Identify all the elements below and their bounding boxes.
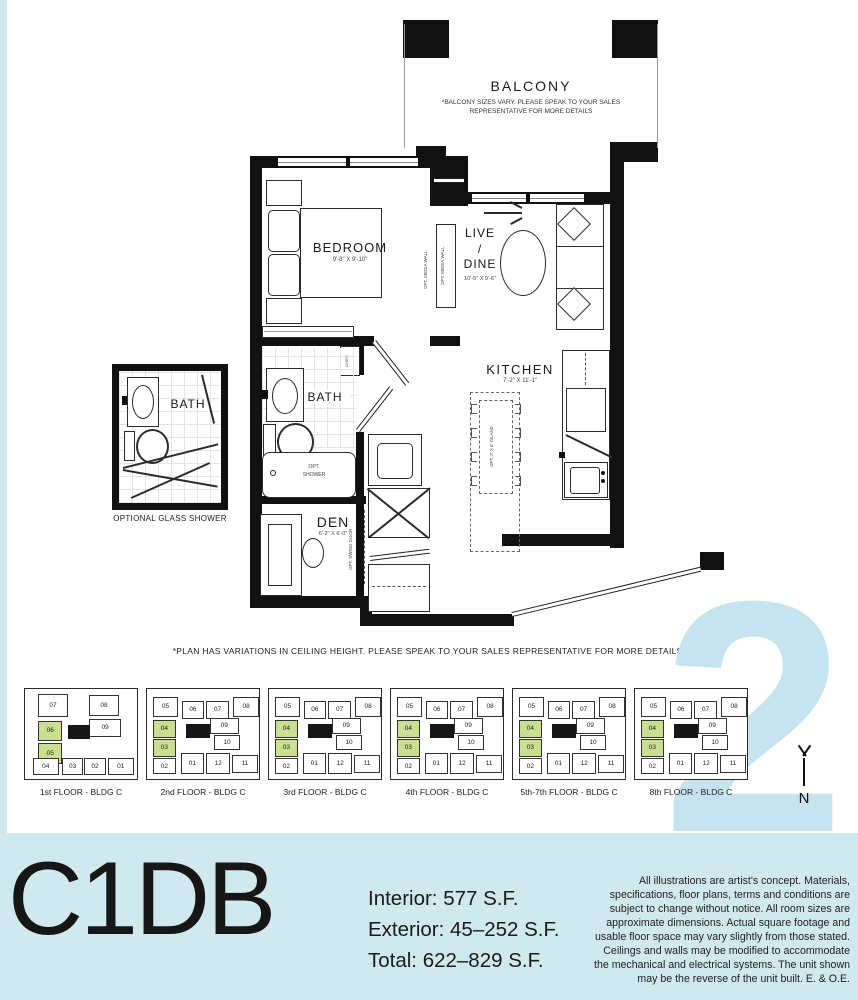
keyplan-unit: 03 [62,758,83,775]
footer-band: C1DB Interior: 577 S.F. Exterior: 45–252… [0,833,858,1000]
keyplan-map: 050607080409031002011211 [634,688,748,780]
island-chair [515,452,521,462]
inset-caption: OPTIONAL GLASS SHOWER [100,514,240,523]
disclaimer: All illustrations are artist's concept. … [590,875,850,987]
keyplan-unit: 10 [580,735,606,750]
island-chair [471,452,477,462]
inset-toilet-tank [124,431,135,461]
bedroom-dims: 9'-8" X 9'-10" [288,257,412,263]
keyplan-unit: 06 [670,701,692,719]
keyplan-unit: 05 [153,697,179,717]
keyplan-unit: 02 [397,758,421,774]
inset-faucet [122,396,127,405]
keyplan: 0708060905040302011st FLOOR - BLDG C [24,688,138,797]
keyplan-unit: 11 [354,755,380,773]
keyplan-unit: 09 [454,718,483,734]
washer [377,443,413,479]
keyplan-unit: 01 [669,753,693,774]
keyplan-unit-highlighted: 04 [275,720,299,738]
keyplan-core [68,725,90,739]
keyplan-unit-highlighted: 03 [641,739,665,757]
balcony-label: BALCONY [403,78,659,94]
floorplan-sheet: BALCONY *BALCONY SIZES VARY. PLEASE SPEA… [0,0,858,1000]
keyplan-unit: 07 [328,701,350,719]
nightstand [266,298,302,324]
keyplan-unit: 08 [233,697,259,717]
wall-bedroom-bottom [430,336,460,346]
swing-door-label: OPT. SWING DOOR [348,518,358,580]
keyplan-unit: 12 [450,753,474,774]
keyplan-unit-highlighted: 03 [275,739,299,757]
keyplan-unit-highlighted: 04 [153,720,177,738]
keyplan-core [552,724,576,738]
keyplan-unit-highlighted: 04 [397,720,421,738]
keyplan-unit: 07 [206,701,228,719]
keyplan-unit: 09 [89,719,121,737]
keyplan-unit-highlighted: 04 [519,720,543,738]
keyplan-unit: 05 [275,697,301,717]
keyplan-unit: 11 [232,755,258,773]
keyplan-map: 050607080409031002011211 [146,688,260,780]
keyplan-unit: 11 [598,755,624,773]
island-chair [515,428,521,438]
keyplan-unit: 02 [84,758,105,775]
media-wall-label: OPT. MEDIA WALL [440,228,452,304]
island-chair [515,404,521,414]
keyplan-core [186,724,210,738]
keyplan-unit: 01 [108,758,134,775]
keyplan: 0506070804090310020112114th FLOOR - BLDG… [390,688,504,797]
keyplan-map: 050607080409031002011211 [268,688,382,780]
keyplan-map: 050607080409031002011211 [390,688,504,780]
window-mullion [526,193,530,203]
keyplan-unit-highlighted: 03 [519,739,543,757]
keyplan-unit: 07 [694,701,716,719]
den-desk-top [268,524,292,586]
wall-balcony-pillar [612,20,658,58]
keyplan-unit: 12 [328,753,352,774]
keyplan-unit: 07 [450,701,472,719]
keyplan-unit: 05 [519,697,545,717]
window-mullion [346,157,350,167]
keyplan-unit: 08 [721,697,747,717]
keyplan-unit: 12 [572,753,596,774]
keyplan-map: 070806090504030201 [24,688,138,780]
north-arrow-shaft [803,758,805,786]
den-chair [302,538,324,568]
closet-rod [372,586,426,587]
keyplan-unit: 01 [547,753,571,774]
counter-chip [559,452,565,458]
island-chair [471,476,477,486]
sofa-seam [557,288,603,289]
keyplan-unit-highlighted: 03 [397,739,421,757]
keyplan-caption: 5th-7th FLOOR - BLDG C [512,787,626,797]
stat-interior: Interior: 577 S.F. [368,883,559,914]
keyplan-unit: 09 [332,718,361,734]
keyplan-map: 050607080409031002011211 [512,688,626,780]
keyplan-unit: 05 [397,697,423,717]
closet-door-leaf [370,549,430,561]
keyplan: 0506070804090310020112118th FLOOR - BLDG… [634,688,748,797]
wall-entry-bottom [360,614,514,626]
north-label: N [784,790,824,807]
keyplan-unit: 12 [206,753,230,774]
keyplan-unit: 08 [89,695,119,716]
stat-total: Total: 622–829 S.F. [368,945,559,976]
unit-stats: Interior: 577 S.F. Exterior: 45–252 S.F.… [368,883,559,976]
keyplan-unit: 01 [425,753,449,774]
keyplan: 0506070804090310020112115th-7th FLOOR - … [512,688,626,797]
sofa-seam [557,246,603,247]
keyplan-unit: 10 [336,735,362,750]
wall-den-bottom [250,596,370,608]
keyplan-unit: 09 [698,718,727,734]
keyplan-caption: 8th FLOOR - BLDG C [634,787,748,797]
sliding-door [434,178,464,183]
keyplan: 0506070804090310020112112nd FLOOR - BLDG… [146,688,260,797]
wall-right [610,192,624,544]
wall-corner-fill [610,532,624,548]
keyplan-caption: 1st FLOOR - BLDG C [24,787,138,797]
keyplan-unit-highlighted: 04 [641,720,665,738]
keyplan-unit: 02 [153,758,177,774]
keyplan-caption: 4th FLOOR - BLDG C [390,787,504,797]
tub-drain [270,470,276,476]
opt-shower-label: OPT. SHOWER [284,464,344,479]
kitchen-sink [570,467,600,494]
wall-right-return [610,158,624,200]
bedroom-closet [262,326,354,338]
faucet-dot [601,471,605,475]
island-label: OPT. 2' X 6' ISLAND [489,404,503,490]
keyplan-core [308,724,332,738]
direction-arrow-shaft [484,212,522,214]
keyplan-unit: 06 [426,701,448,719]
wall-balcony-pillar [403,20,449,58]
entry-closet [368,564,430,612]
bath-door-leaf [356,386,393,432]
keyplan-unit: 07 [572,701,594,719]
balcony-note: *BALCONY SIZES VARY. PLEASE SPEAK TO YOU… [426,98,636,116]
keyplan-unit: 04 [33,758,59,775]
keyplan-unit: 08 [477,697,503,717]
keyplan: 0506070804090310020112113rd FLOOR - BLDG… [268,688,382,797]
keyplan-unit: 10 [214,735,240,750]
keyplan-unit: 10 [458,735,484,750]
keyplan-unit: 08 [599,697,625,717]
keyplan-unit: 06 [304,701,326,719]
counter-centerline [585,353,586,385]
faucet-dot [601,479,605,483]
kitchen-label: KITCHEN [468,362,572,377]
keyplan-unit: 01 [181,753,205,774]
stat-exterior: Exterior: 45–252 S.F. [368,914,559,945]
keyplan-unit: 02 [641,758,665,774]
island-chair [471,428,477,438]
keyplan-unit: 08 [355,697,381,717]
keyplan-unit: 01 [303,753,327,774]
island-chair [471,404,477,414]
bedroom-door-leaf [372,340,409,386]
unit-name: C1DB [8,847,273,951]
media-wall-label: OPT. MEDIA WALL [423,236,432,304]
kitchen-dims: 7'-2" X 11'-1" [468,378,572,384]
keyplan-core [430,724,454,738]
keyplan-unit: 11 [476,755,502,773]
closet-shelf-line [264,331,352,332]
island-chair [515,476,521,486]
dining-table [500,230,546,296]
keyplan-caption: 2nd FLOOR - BLDG C [146,787,260,797]
glass-shower-inset: BATH [112,364,228,510]
keyplan-unit: 02 [275,758,299,774]
keyplan-unit: 07 [38,694,67,717]
page-edge-strip [0,0,7,1000]
swing-door-line [364,510,365,584]
keyplan-unit: 09 [210,718,239,734]
keyplan-caption: 3rd FLOOR - BLDG C [268,787,382,797]
keyplan-core [674,724,698,738]
keyplan-unit: 09 [576,718,605,734]
keyplan-unit: 10 [702,735,728,750]
keyplan-unit: 06 [182,701,204,719]
keyplan-unit-highlighted: 03 [153,739,177,757]
bedroom-label: BEDROOM [288,240,412,255]
direction-arrow-head [510,217,522,224]
keyplan-unit: 11 [720,755,746,773]
bath-label: BATH [300,390,350,404]
inset-sink [132,385,154,419]
north-arrow: N [784,744,824,806]
keyplan-unit: 02 [519,758,543,774]
keyplan-unit: 06 [548,701,570,719]
keyplans-row: 0708060905040302011st FLOOR - BLDG C0506… [24,688,748,797]
keyplan-unit: 05 [641,697,667,717]
bath-faucet [262,390,268,399]
keyplan-unit-highlighted: 06 [38,721,62,742]
keyplan-unit: 12 [694,753,718,774]
fridge [566,388,606,432]
bath-sink [272,378,298,414]
nightstand [266,180,302,206]
